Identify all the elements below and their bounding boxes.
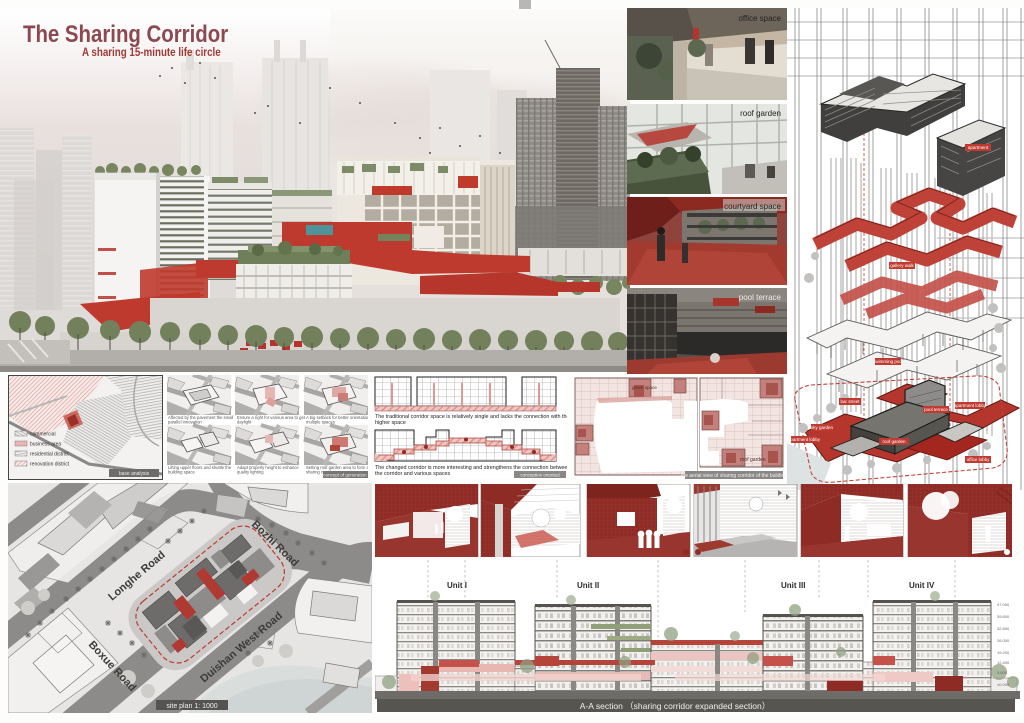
svg-text:pool terrace: pool terrace bbox=[739, 293, 782, 302]
svg-text:12.400: 12.400 bbox=[997, 660, 1010, 665]
svg-text:5.600: 5.600 bbox=[997, 670, 1008, 675]
svg-text:47.000: 47.000 bbox=[997, 602, 1010, 607]
svg-text:roof garden: roof garden bbox=[740, 109, 781, 118]
svg-text:commercial: commercial bbox=[30, 432, 56, 438]
svg-text:Unit I: Unit I bbox=[447, 581, 467, 590]
svg-text:19.200: 19.200 bbox=[997, 650, 1010, 655]
svg-text:apartment lobby: apartment lobby bbox=[788, 437, 821, 442]
svg-text:base analysis: base analysis bbox=[119, 471, 150, 477]
svg-text:apartment: apartment bbox=[968, 145, 989, 150]
svg-text:multiple spaces: multiple spaces bbox=[306, 420, 335, 425]
svg-text:business area: business area bbox=[30, 442, 61, 448]
svg-text:office lobby: office lobby bbox=[967, 457, 990, 462]
svg-text:roof garden: roof garden bbox=[882, 439, 906, 444]
svg-text:apartment lobby: apartment lobby bbox=[954, 403, 987, 408]
svg-text:higher space: higher space bbox=[375, 420, 406, 426]
svg-text:courtyard space: courtyard space bbox=[724, 202, 781, 211]
svg-text:32.800: 32.800 bbox=[997, 626, 1010, 631]
svg-text:quality lighting: quality lighting bbox=[237, 470, 264, 475]
svg-text:parallel innovation: parallel innovation bbox=[168, 420, 202, 425]
svg-text:26.000: 26.000 bbox=[997, 638, 1010, 643]
svg-text:39.600: 39.600 bbox=[997, 614, 1010, 619]
svg-text:residential district: residential district bbox=[30, 452, 69, 458]
svg-text:office space: office space bbox=[738, 14, 781, 23]
svg-text:concept of generation: concept of generation bbox=[323, 473, 367, 478]
svg-text:Unit II: Unit II bbox=[577, 581, 599, 590]
svg-text:roof garden: roof garden bbox=[740, 457, 766, 463]
svg-text:A-A section （sharing corridor: A-A section （sharing corridor expanded s… bbox=[580, 701, 770, 711]
svg-text:conception oriented: conception oriented bbox=[520, 473, 560, 478]
svg-text:renovation district: renovation district bbox=[30, 462, 70, 468]
svg-text:sky garden: sky garden bbox=[811, 425, 834, 430]
svg-text:the corridor and various space: the corridor and various spaces bbox=[375, 471, 451, 477]
svg-text:swimming pool: swimming pool bbox=[873, 359, 903, 364]
svg-text:the aerial view of sharing cor: the aerial view of sharing corridor of t… bbox=[681, 473, 786, 479]
svg-text:building space: building space bbox=[168, 470, 195, 475]
svg-text:site plan 1: 1000: site plan 1: 1000 bbox=[166, 703, 217, 710]
svg-text:Unit IV: Unit IV bbox=[909, 581, 935, 590]
svg-text:Unit III: Unit III bbox=[781, 581, 805, 590]
svg-text:bar street: bar street bbox=[840, 399, 860, 404]
svg-text:gallery walk: gallery walk bbox=[890, 263, 914, 268]
svg-text:daylight: daylight bbox=[237, 420, 252, 425]
svg-text:green space: green space bbox=[632, 385, 657, 390]
svg-text:±0.000: ±0.000 bbox=[997, 682, 1010, 687]
svg-text:pool terrace: pool terrace bbox=[924, 407, 948, 412]
